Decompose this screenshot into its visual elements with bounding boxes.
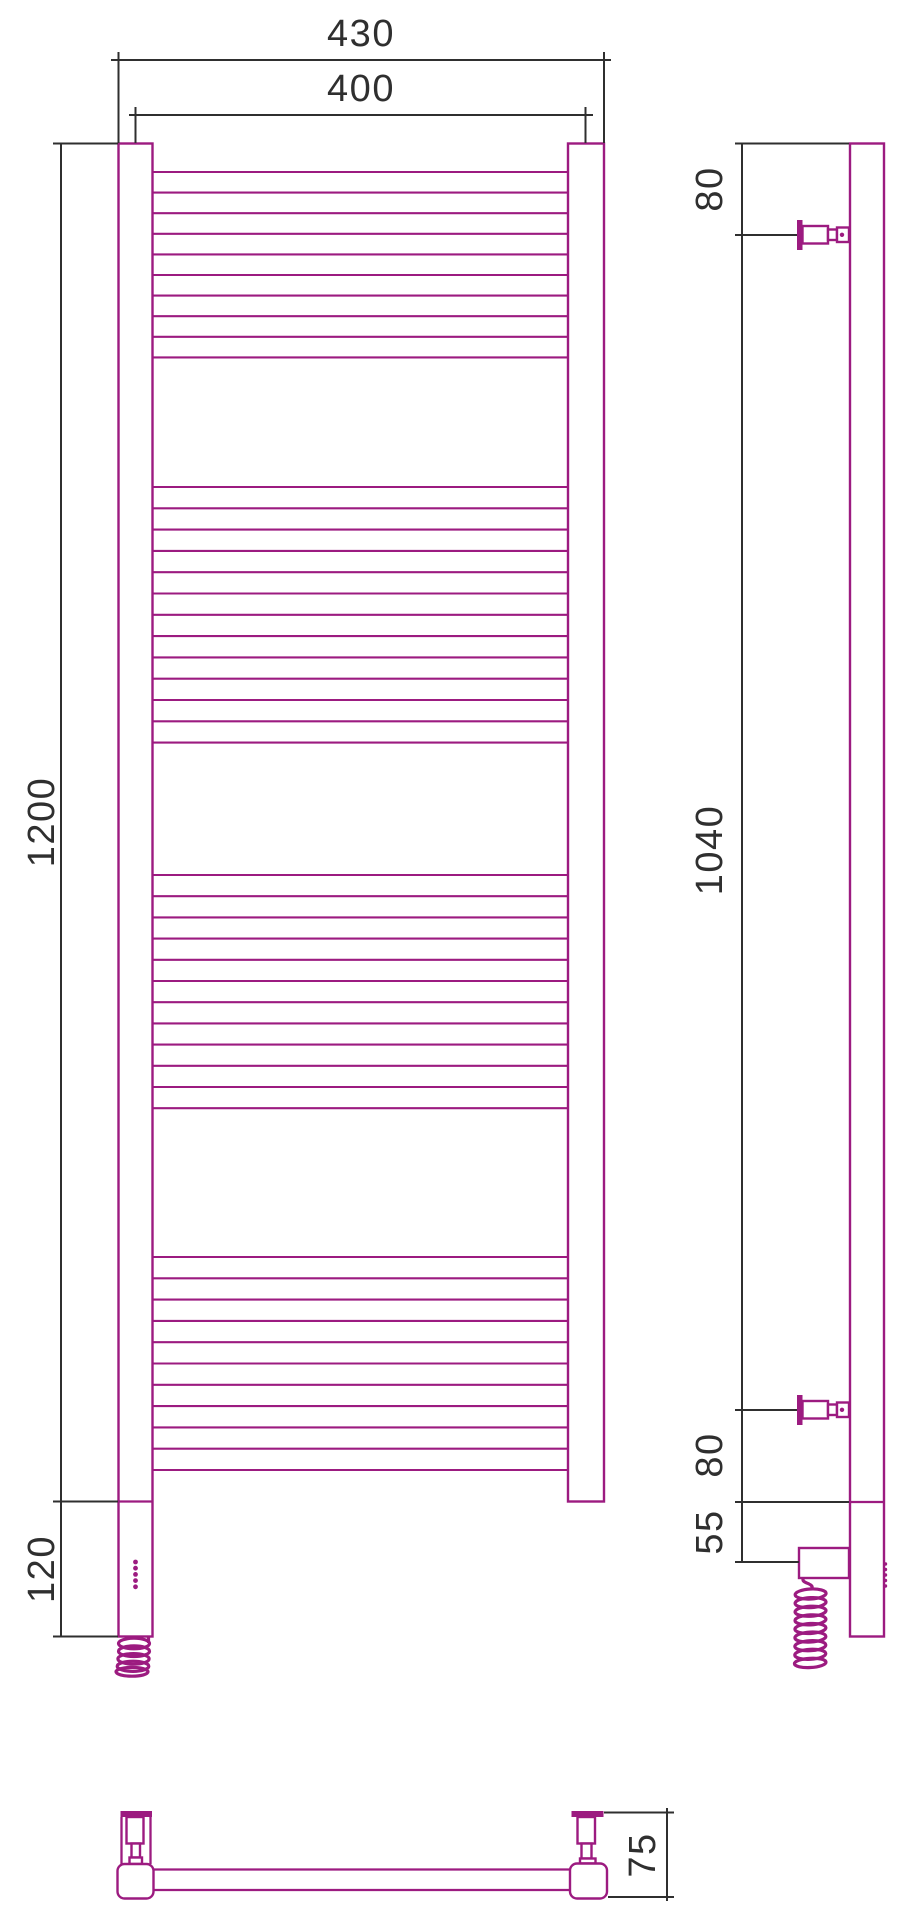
side-dimensions: 80 1040 80 55 bbox=[689, 144, 849, 1563]
front-power-cable-coil bbox=[116, 1637, 150, 1676]
rung-lines bbox=[153, 172, 569, 1470]
front-left-collector bbox=[119, 144, 153, 1637]
bottom-left-bracket bbox=[121, 1811, 153, 1864]
dim-text-430: 430 bbox=[327, 13, 395, 55]
dim-text-75: 75 bbox=[622, 1832, 664, 1877]
dim-text-1040: 1040 bbox=[689, 805, 731, 896]
bottom-dimensions: 75 bbox=[604, 1808, 674, 1901]
front-view bbox=[116, 144, 604, 1677]
dim-text-1200: 1200 bbox=[21, 777, 63, 868]
led-dot bbox=[884, 1579, 887, 1582]
dim-text-400: 400 bbox=[327, 68, 395, 110]
led-dot bbox=[884, 1573, 887, 1576]
front-right-collector bbox=[568, 144, 604, 1502]
dim-text-55: 55 bbox=[689, 1509, 731, 1554]
side-bottom-wall-bracket bbox=[797, 1395, 849, 1425]
led-dot bbox=[884, 1584, 887, 1587]
led-dot bbox=[133, 1566, 138, 1571]
led-dot bbox=[133, 1560, 138, 1565]
bottom-left-collector-section bbox=[118, 1864, 154, 1899]
drawing-canvas: 430 400 1200 120 bbox=[0, 0, 906, 1920]
bottom-right-bracket bbox=[572, 1811, 604, 1864]
side-power-cable-coil bbox=[790, 1577, 830, 1668]
led-dot bbox=[884, 1562, 887, 1565]
side-view bbox=[790, 144, 887, 1669]
led-dot bbox=[133, 1572, 138, 1577]
led-dot bbox=[884, 1568, 887, 1571]
side-heating-element-housing bbox=[799, 1548, 849, 1578]
front-dimensions: 430 400 1200 120 bbox=[21, 13, 611, 1637]
led-dot bbox=[133, 1584, 138, 1589]
dim-text-120: 120 bbox=[21, 1535, 63, 1603]
side-top-wall-bracket bbox=[797, 220, 849, 250]
bottom-right-collector-section bbox=[570, 1864, 607, 1899]
dim-text-80-bottom: 80 bbox=[689, 1432, 731, 1477]
bottom-view bbox=[118, 1811, 608, 1899]
side-profile-bar bbox=[850, 144, 884, 1637]
towel-rail-drawing: 430 400 1200 120 bbox=[0, 0, 906, 1920]
led-dot bbox=[133, 1578, 138, 1583]
dim-text-80-top: 80 bbox=[689, 166, 731, 211]
